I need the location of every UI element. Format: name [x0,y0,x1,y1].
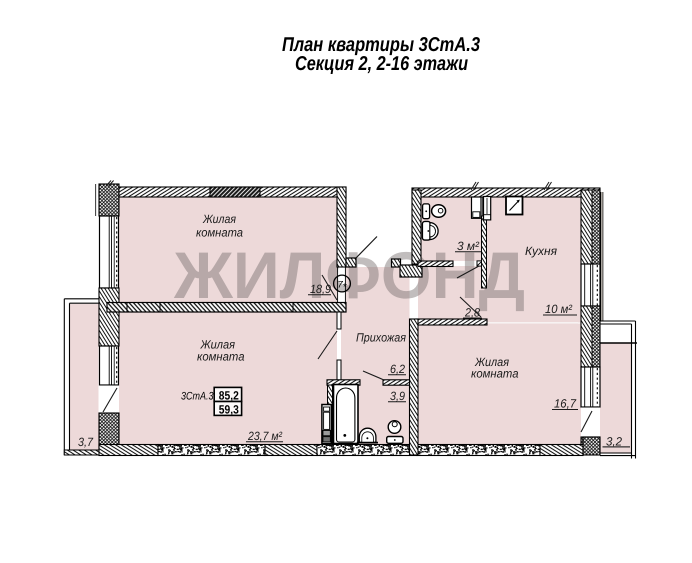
svg-text:18,9: 18,9 [310,282,331,296]
svg-text:23,7 м²: 23,7 м² [247,429,283,443]
svg-text:*: * [343,282,347,293]
svg-text:85,2: 85,2 [219,389,239,403]
svg-text:10 м²: 10 м² [545,302,573,316]
svg-text:Секция 2, 2-16 этажи: Секция 2, 2-16 этажи [295,53,468,75]
svg-text:Жилая: Жилая [202,212,236,226]
svg-text:комната: комната [196,226,243,240]
svg-text:3,7: 3,7 [78,435,94,449]
svg-text:3 м²: 3 м² [457,239,480,253]
svg-text:3,9: 3,9 [390,389,405,403]
svg-text:Прихожая: Прихожая [356,331,407,345]
svg-text:2,8: 2,8 [464,306,480,320]
svg-text:комната: комната [197,350,245,364]
svg-text:3СтА.3: 3СтА.3 [181,391,214,403]
svg-text:6,2: 6,2 [390,362,405,376]
svg-text:комната: комната [471,367,519,381]
svg-text:16,7: 16,7 [554,397,577,411]
svg-text:Кухня: Кухня [525,244,558,258]
svg-text:59,3: 59,3 [219,402,239,416]
